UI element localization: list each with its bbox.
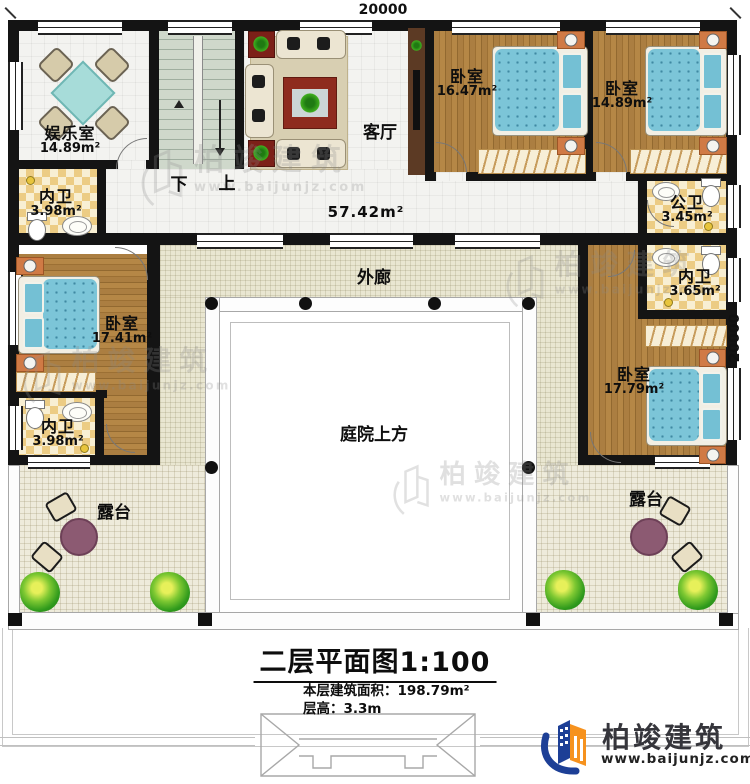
living-area-value: 57.42m² bbox=[328, 204, 405, 220]
wall-bathL-right bbox=[95, 390, 104, 455]
nightstand bbox=[557, 137, 585, 155]
terrace-label-left: 露台 bbox=[97, 498, 131, 523]
plant bbox=[545, 570, 585, 610]
corner-post bbox=[8, 613, 22, 626]
wall-wingR-west bbox=[578, 245, 588, 465]
room-label-public-bath: 公卫3.45m² bbox=[661, 194, 712, 225]
stair-arrow-head bbox=[215, 148, 225, 156]
side-table bbox=[248, 31, 275, 58]
room-label-living: 客厅 bbox=[363, 118, 397, 143]
stair-stringer bbox=[193, 36, 203, 164]
window bbox=[606, 20, 700, 35]
door-arc bbox=[115, 247, 148, 280]
window bbox=[8, 406, 23, 450]
wall-bathR-left bbox=[638, 245, 647, 317]
side-table bbox=[248, 140, 275, 167]
column bbox=[428, 297, 441, 310]
railing-west bbox=[205, 297, 220, 614]
room-label-bath-top-left: 内卫3.98m² bbox=[30, 188, 81, 219]
dimension-top: 20000 bbox=[343, 2, 423, 18]
toilet bbox=[28, 219, 46, 241]
plan-title: 二层平面图1:100 bbox=[254, 640, 497, 683]
window bbox=[726, 185, 741, 228]
room-label-bath-right: 内卫3.65m² bbox=[669, 268, 720, 299]
floor-drain bbox=[26, 176, 35, 185]
room-label-bedroom-1: 卧室16.47m² bbox=[437, 68, 497, 99]
bed bbox=[18, 276, 100, 354]
corner-post bbox=[198, 613, 212, 626]
brand-logo-icon bbox=[536, 712, 600, 776]
room-label-bath-left: 内卫3.98m² bbox=[32, 418, 83, 449]
terrace-table bbox=[60, 518, 98, 556]
nightstand bbox=[557, 31, 585, 49]
window bbox=[8, 62, 23, 130]
dimension-right: 20000 bbox=[727, 303, 743, 373]
column bbox=[299, 297, 312, 310]
plant bbox=[678, 570, 718, 610]
floor-area-text: 本层建筑面积：198.79m² bbox=[303, 679, 470, 699]
floor-height-text: 层高：3.3m bbox=[303, 697, 381, 717]
window bbox=[330, 233, 413, 249]
terrace-label-right: 露台 bbox=[629, 485, 663, 510]
column bbox=[205, 461, 218, 474]
railing-east bbox=[522, 297, 537, 614]
room-label-entertainment: 娱乐室14.89m² bbox=[40, 125, 100, 156]
railing-terrace-right-outer bbox=[727, 465, 739, 614]
corridor-label: 外廊 bbox=[357, 263, 391, 288]
window bbox=[726, 368, 741, 440]
coffee-table bbox=[283, 77, 337, 129]
dimension-tick bbox=[4, 7, 16, 19]
window bbox=[197, 233, 283, 249]
sofa bbox=[276, 139, 346, 168]
plant bbox=[20, 572, 60, 612]
terrace-table bbox=[630, 518, 668, 556]
stair-label-up: 上 bbox=[219, 169, 236, 194]
tv bbox=[413, 70, 420, 130]
wall-bathR-bottom bbox=[638, 310, 737, 319]
wall-pubbath-bathR bbox=[638, 236, 737, 245]
floor-plan: 娱乐室14.89m² 内卫3.98m² 客厅 57.42m² 卧室16.47m²… bbox=[0, 0, 750, 784]
stair-arrow-head bbox=[174, 100, 184, 108]
plant bbox=[150, 572, 190, 612]
floor-corridor-west bbox=[160, 297, 205, 470]
nightstand bbox=[699, 137, 727, 155]
window bbox=[726, 258, 741, 302]
nightstand bbox=[16, 257, 44, 275]
door-gap-bed2 bbox=[596, 172, 626, 181]
room-label-bedroom-left: 卧室17.41m² bbox=[92, 315, 152, 346]
room-label-bedroom-2: 卧室14.89m² bbox=[592, 80, 652, 111]
brand-url: www.baijunjz.com bbox=[601, 751, 750, 767]
plan-title-text: 二层平面图 bbox=[260, 647, 400, 678]
room-label-bedroom-right: 卧室17.79m² bbox=[604, 366, 664, 397]
window bbox=[452, 20, 560, 35]
porch-roof-outline bbox=[253, 706, 483, 782]
bed bbox=[492, 46, 588, 136]
courtyard-opening bbox=[218, 310, 522, 612]
window bbox=[168, 20, 232, 35]
sink bbox=[652, 248, 680, 267]
nightstand bbox=[699, 31, 727, 49]
stair-label-down: 下 bbox=[171, 170, 188, 195]
courtyard-inner-line bbox=[230, 322, 510, 600]
nightstand bbox=[699, 349, 726, 367]
brand-name: 柏竣建筑 bbox=[602, 716, 726, 756]
corner-post bbox=[526, 613, 540, 626]
wall-bathTL-right bbox=[97, 169, 106, 233]
nightstand bbox=[16, 354, 44, 372]
window bbox=[726, 55, 741, 135]
corner-post bbox=[719, 613, 733, 626]
bed bbox=[645, 46, 727, 136]
window bbox=[455, 233, 540, 249]
window bbox=[38, 20, 122, 35]
railing-terrace-left-outer bbox=[8, 465, 20, 614]
courtyard-label: 庭院上方 bbox=[340, 420, 408, 445]
railing-north bbox=[205, 297, 537, 312]
column bbox=[522, 461, 535, 474]
wall-pubbath-left bbox=[638, 172, 647, 245]
nightstand bbox=[699, 446, 726, 464]
wall-wingL-east bbox=[147, 245, 160, 465]
window bbox=[28, 455, 90, 469]
wardrobe bbox=[16, 372, 96, 392]
sofa bbox=[276, 30, 346, 59]
sofa bbox=[245, 64, 274, 138]
floor-drain bbox=[664, 298, 673, 307]
column bbox=[522, 297, 535, 310]
wardrobe bbox=[645, 325, 727, 347]
dimension-tick bbox=[729, 7, 741, 19]
ground-line bbox=[0, 737, 255, 738]
wall-living-bed1 bbox=[425, 30, 434, 181]
wall-ent-stair bbox=[149, 30, 159, 169]
ground-line bbox=[0, 745, 255, 746]
stair-direction-arrow bbox=[219, 100, 221, 152]
plan-scale: 1:100 bbox=[400, 647, 491, 678]
floor-corridor-east bbox=[535, 297, 578, 470]
wall-stair-living bbox=[235, 30, 244, 169]
tv-wall-panel bbox=[408, 28, 425, 175]
railing-south bbox=[8, 612, 739, 630]
column bbox=[205, 297, 218, 310]
door-gap-bed1 bbox=[436, 172, 466, 181]
